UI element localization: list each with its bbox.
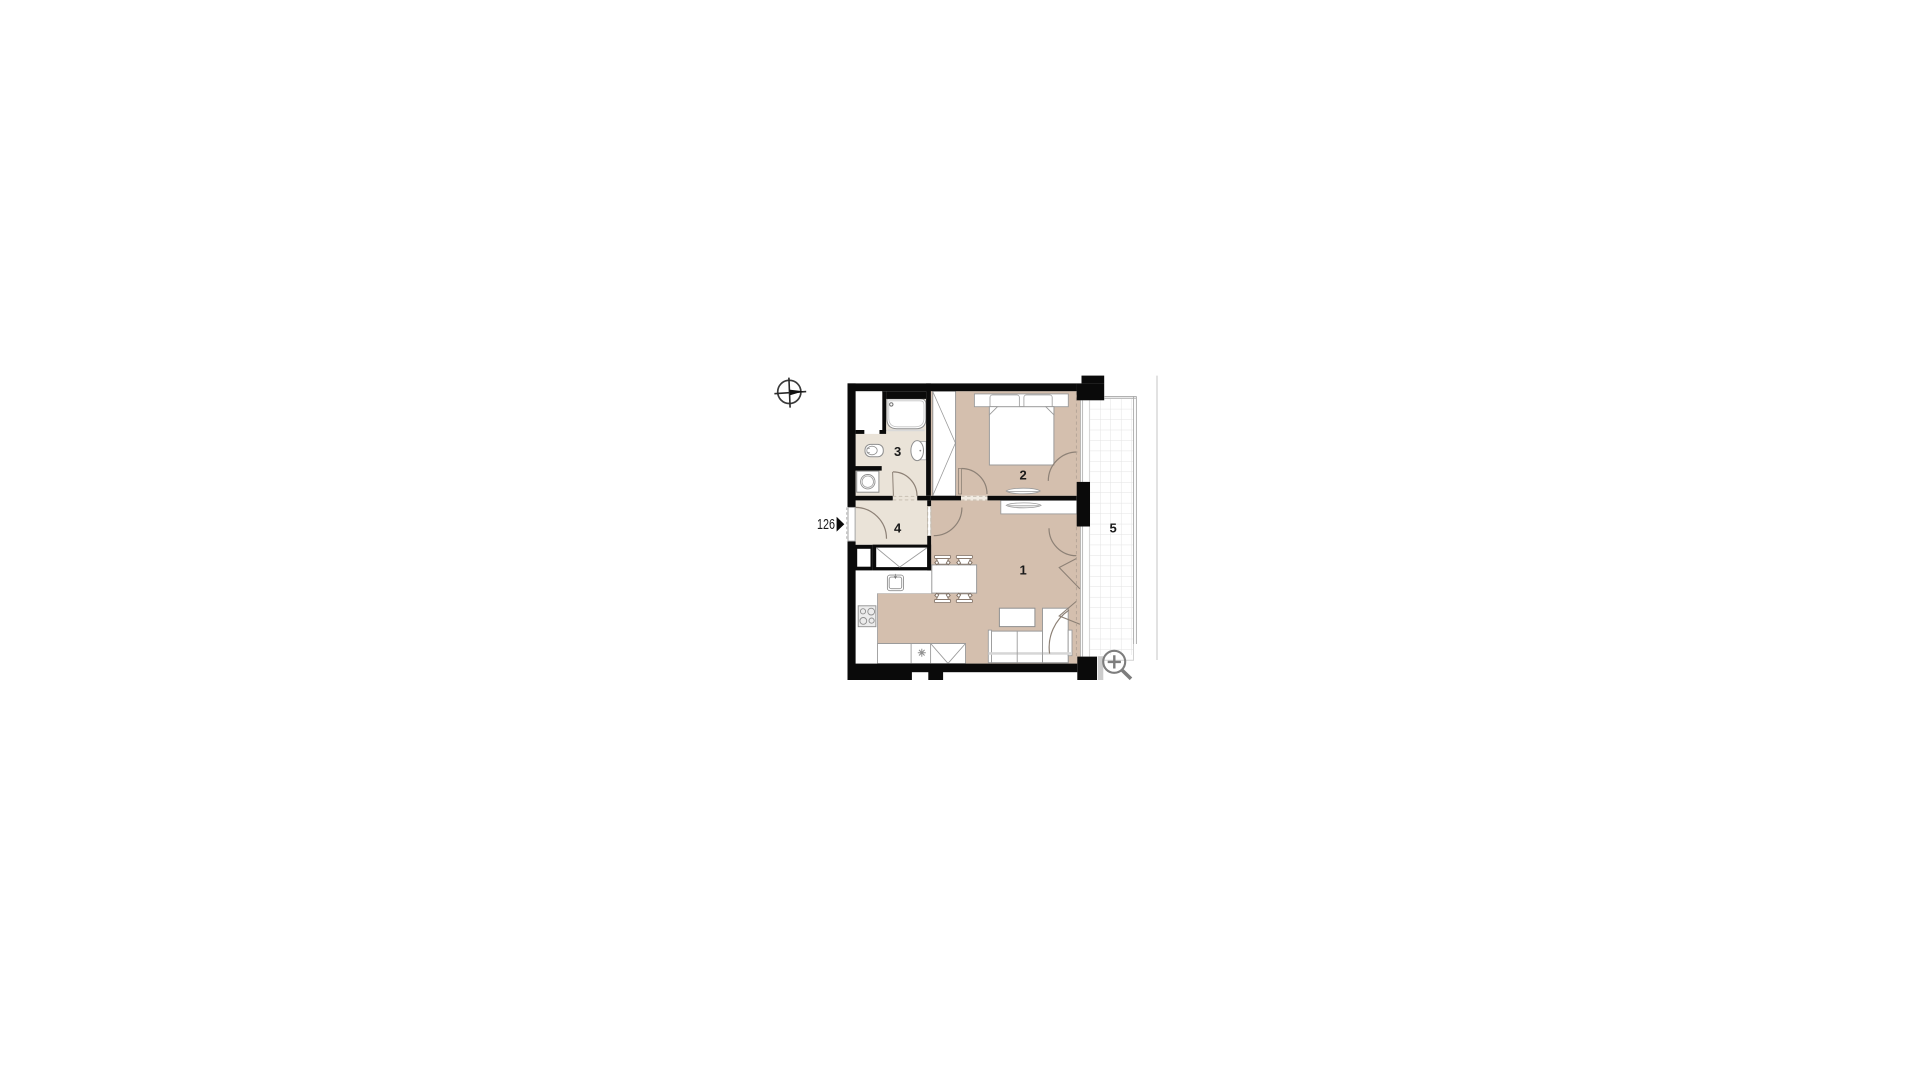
svg-text:2: 2	[1020, 468, 1027, 483]
svg-text:1: 1	[1020, 563, 1027, 578]
svg-text:4: 4	[894, 521, 902, 536]
svg-text:126: 126	[817, 517, 835, 533]
svg-text:5: 5	[1110, 521, 1117, 536]
svg-text:3: 3	[894, 444, 901, 459]
